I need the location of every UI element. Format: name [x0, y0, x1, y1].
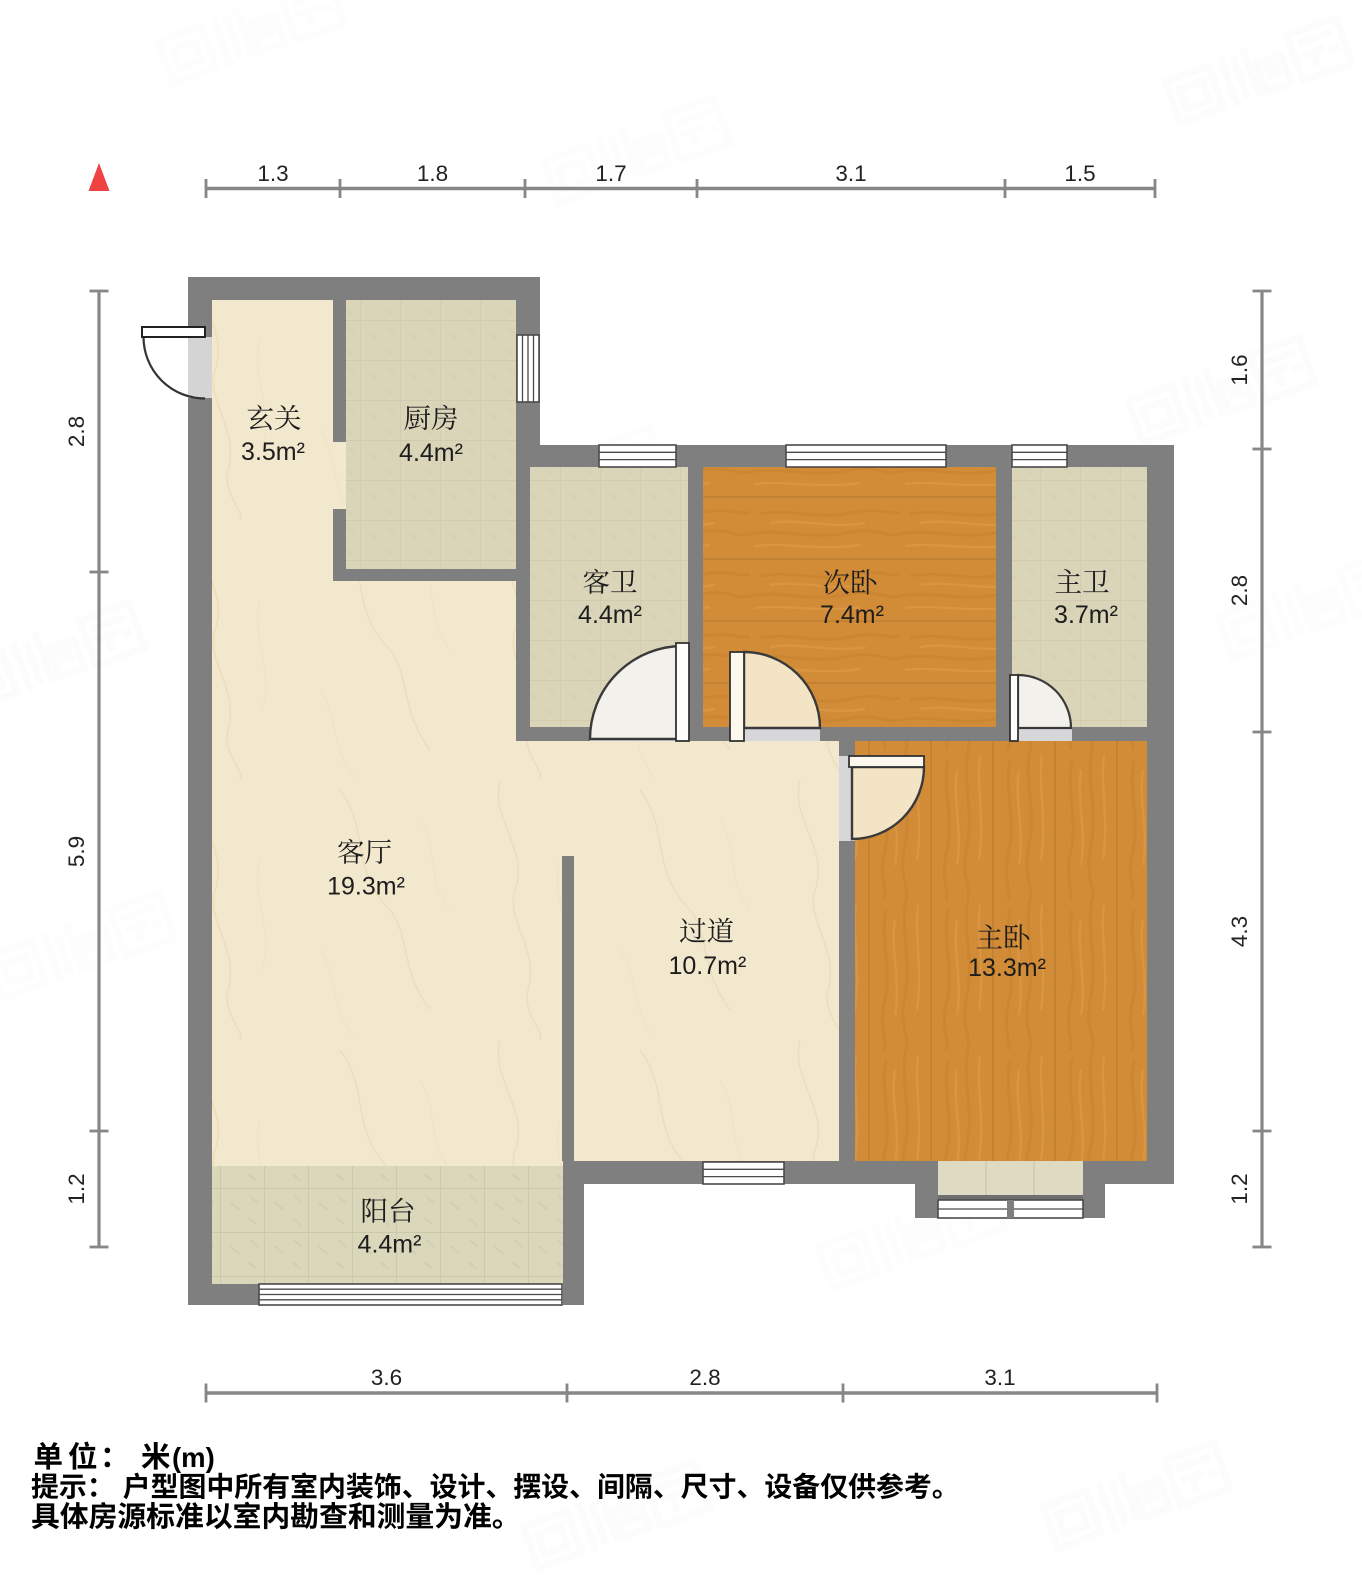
svg-text:2.8: 2.8 — [1227, 575, 1252, 606]
svg-text:4.4m²: 4.4m² — [358, 1230, 422, 1258]
svg-text:7.4m²: 7.4m² — [820, 601, 884, 629]
svg-text:1.6: 1.6 — [1227, 354, 1252, 385]
svg-text:1.2: 1.2 — [1227, 1173, 1252, 1204]
svg-text:3.6: 3.6 — [371, 1365, 402, 1390]
svg-text:1.5: 1.5 — [1064, 161, 1095, 186]
svg-text:(m): (m) — [172, 1442, 215, 1473]
svg-text:4.4m²: 4.4m² — [399, 439, 463, 467]
svg-text:2.8: 2.8 — [64, 416, 89, 447]
svg-text:19.3m²: 19.3m² — [327, 873, 405, 901]
svg-text:1.2: 1.2 — [64, 1173, 89, 1204]
svg-text:2.8: 2.8 — [689, 1365, 720, 1390]
svg-text:4.4m²: 4.4m² — [578, 601, 642, 629]
svg-text:13.3m²: 13.3m² — [968, 954, 1046, 982]
svg-text:3.1: 3.1 — [984, 1365, 1015, 1390]
svg-text:3.1: 3.1 — [835, 161, 866, 186]
svg-text:1.3: 1.3 — [257, 161, 288, 186]
svg-text:5.9: 5.9 — [64, 836, 89, 867]
svg-text:3.5m²: 3.5m² — [241, 438, 305, 466]
svg-text:1.7: 1.7 — [595, 161, 626, 186]
svg-text:1.8: 1.8 — [417, 161, 448, 186]
svg-text:4.3: 4.3 — [1227, 916, 1252, 947]
svg-text:10.7m²: 10.7m² — [668, 952, 746, 980]
svg-text:3.7m²: 3.7m² — [1054, 601, 1118, 629]
